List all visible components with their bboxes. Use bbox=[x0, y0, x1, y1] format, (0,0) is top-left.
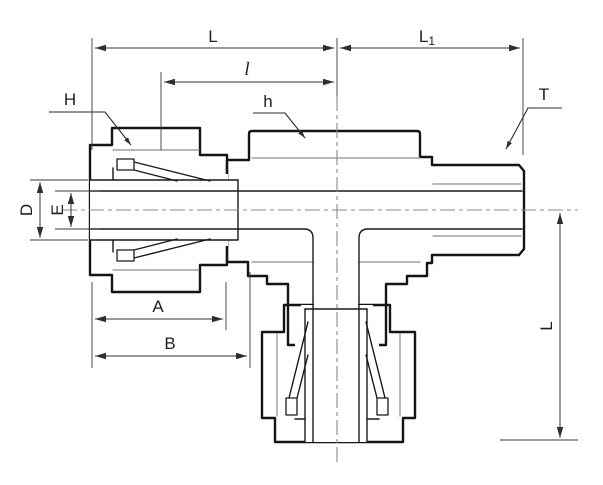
dim-label-L1-base: L bbox=[419, 27, 428, 46]
dimension-L1: L1 bbox=[340, 27, 523, 155]
branch-back-ferrule-left bbox=[286, 398, 297, 415]
dimension-L-vertical: L bbox=[500, 213, 578, 440]
dimension-H-leader: H bbox=[49, 90, 131, 145]
dim-label-D: D bbox=[17, 204, 36, 216]
run-tee-fitting-drawing: L l L1 H h T D E A bbox=[0, 0, 603, 485]
dim-label-B: B bbox=[164, 334, 175, 353]
dimension-B: B bbox=[95, 272, 250, 368]
dimension-A: A bbox=[92, 282, 226, 368]
dim-label-H: H bbox=[64, 90, 76, 109]
left-back-ferrule-bottom bbox=[117, 250, 134, 261]
dim-label-L1-sub: 1 bbox=[428, 34, 435, 48]
fitting-drawing-canvas: L l L1 H h T D E A bbox=[0, 0, 603, 485]
branch-bore bbox=[314, 230, 358, 310]
dim-label-L-vertical: L bbox=[537, 321, 556, 330]
dimension-T-leader: T bbox=[506, 85, 562, 149]
dimension-l-small: l bbox=[161, 59, 334, 150]
dim-label-A: A bbox=[152, 297, 164, 316]
dim-label-L1: L1 bbox=[419, 27, 435, 48]
dim-label-E: E bbox=[48, 204, 67, 215]
fitting-body bbox=[227, 131, 524, 345]
body-section bbox=[227, 131, 524, 345]
left-back-ferrule-top bbox=[117, 159, 134, 170]
dim-label-h: h bbox=[263, 92, 272, 111]
branch-back-ferrule-right bbox=[377, 398, 388, 415]
dim-label-T: T bbox=[539, 85, 549, 104]
branch-tube-port bbox=[305, 309, 367, 442]
dim-label-l: l bbox=[244, 59, 249, 80]
dim-label-L: L bbox=[208, 27, 217, 46]
